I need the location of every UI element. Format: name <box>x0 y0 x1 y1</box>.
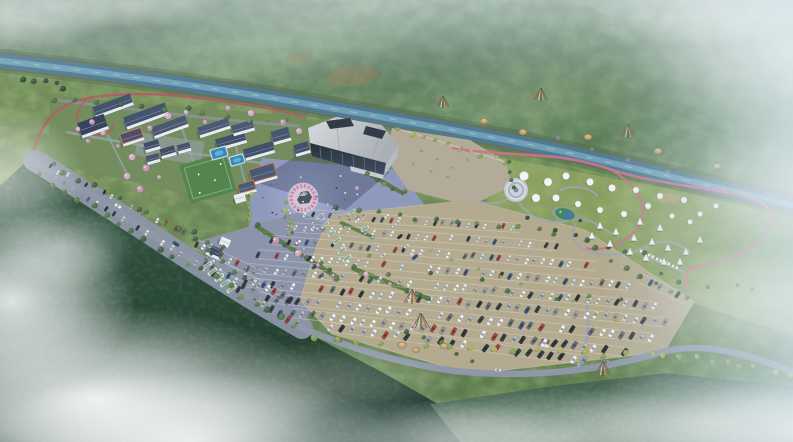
atmosphere-tint <box>0 0 793 442</box>
mist-clouds <box>0 0 793 442</box>
scene-svg <box>0 0 793 442</box>
aerial-rendering-canvas <box>0 0 793 442</box>
